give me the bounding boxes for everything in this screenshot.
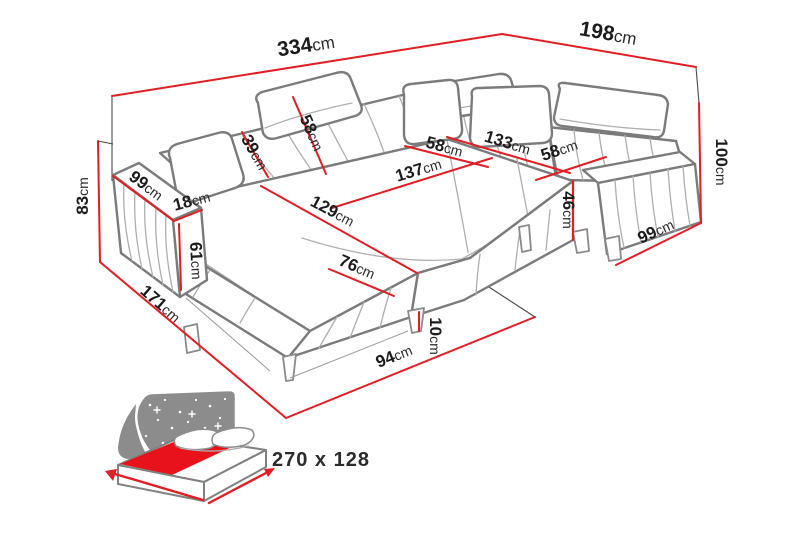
diagram-canvas: 334cm 198cm 83cm 99cm 18cm 61cm 171cm 39… — [0, 0, 800, 533]
dim-label-seat-height: 46cm — [559, 191, 578, 229]
dim-label-arm-height-front: 61cm — [186, 241, 207, 280]
sleeping-area-label: 270 x 128 — [272, 449, 370, 471]
dim-label-front-floor-width: 94cm — [373, 340, 415, 372]
dim-label-back-height-left: 83cm — [73, 177, 92, 215]
dim-label-leg-height: 10cm — [426, 317, 445, 355]
dim-label-back-width: 334cm — [276, 30, 337, 62]
dim-line-back-height-left — [98, 141, 100, 262]
sofa-dimension-diagram: 334cm 198cm 83cm 99cm 18cm 61cm 171cm 39… — [0, 0, 800, 533]
sofa-illustration — [113, 72, 701, 381]
bed-with-mattress-icon: 270 x 128 — [105, 390, 370, 503]
dim-label-right-side-width: 198cm — [578, 17, 639, 50]
dim-label-back-height-right: 100cm — [712, 138, 731, 185]
